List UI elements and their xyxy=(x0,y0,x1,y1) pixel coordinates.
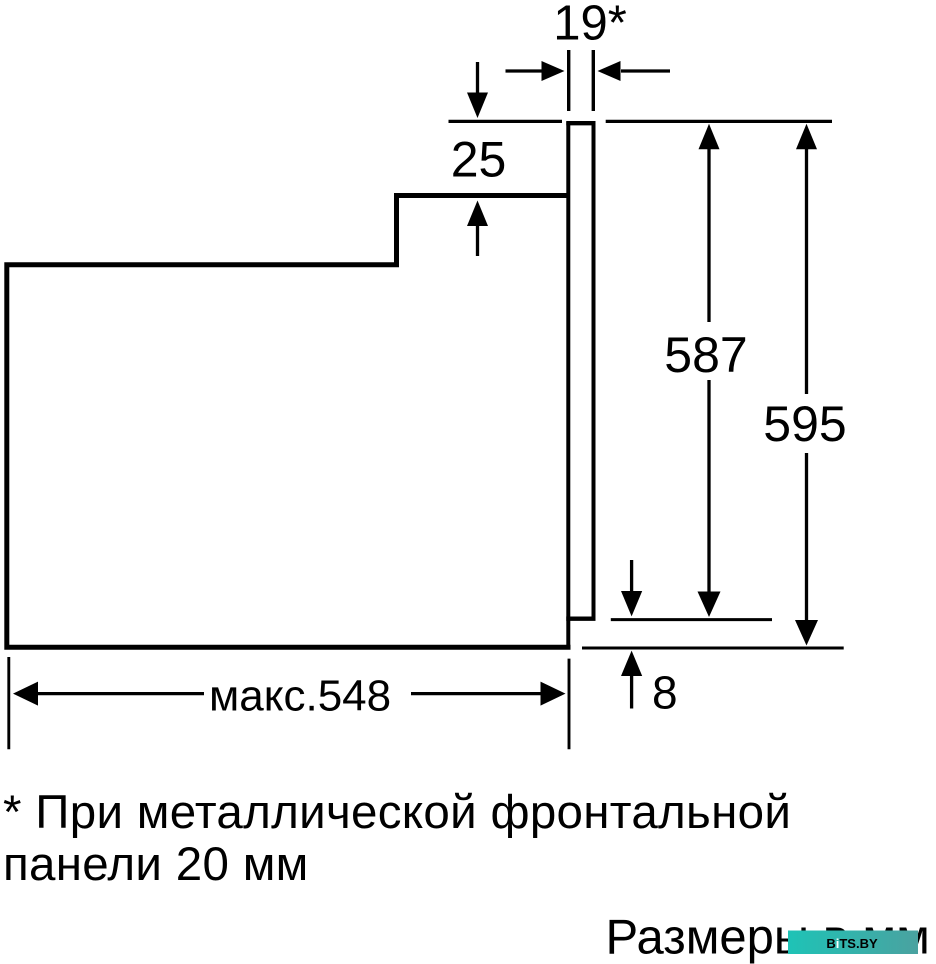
svg-text:макс.548: макс.548 xyxy=(209,672,391,721)
svg-text:19*: 19* xyxy=(553,0,627,51)
svg-text:587: 587 xyxy=(664,327,747,383)
svg-text:25: 25 xyxy=(451,132,507,188)
svg-text:595: 595 xyxy=(763,396,846,452)
svg-text:панели 20 мм: панели 20 мм xyxy=(3,838,309,891)
svg-text:* При металлической фронтально: * При металлической фронтальной xyxy=(3,786,791,839)
svg-text:BiTS.BY: BiTS.BY xyxy=(826,936,878,951)
svg-text:8: 8 xyxy=(652,667,678,719)
